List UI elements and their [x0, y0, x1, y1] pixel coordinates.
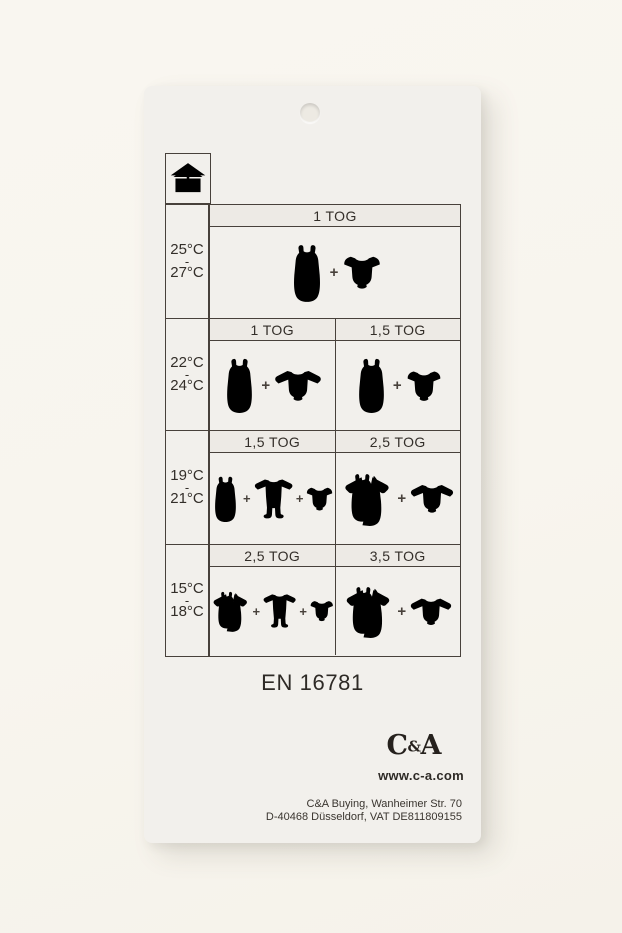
garment-cell: + + — [210, 567, 335, 655]
plus-sign: + — [260, 377, 271, 394]
garment-cell: + — [210, 341, 335, 430]
temp-range: 15°C - 18°C — [166, 544, 208, 655]
tog-header: 2,5 TOG — [335, 431, 461, 452]
temp-range: 22°C - 24°C — [166, 318, 208, 430]
bodysuit-short-sleeve-icon — [341, 254, 383, 291]
tog-table: 1 TOG + 1 TOG 1,5 TOG — [209, 204, 461, 657]
temp-range: 25°C - 27°C — [166, 205, 208, 318]
table-row: 1,5 TOG 2,5 TOG + + + — [210, 430, 460, 544]
table-row: 1 TOG + — [210, 205, 460, 318]
garment-cell: + — [210, 227, 460, 318]
plus-sign: + — [253, 604, 261, 619]
plus-sign: + — [296, 491, 304, 506]
plus-sign: + — [329, 264, 340, 281]
website-url: www.c-a.com — [378, 768, 464, 783]
plus-sign: + — [299, 604, 307, 619]
sleeping-bag-icon — [221, 356, 258, 415]
garment-cell: + — [335, 341, 461, 430]
company-address: C&A Buying, Wanheimer Str. 70 D-40468 Dü… — [266, 798, 462, 824]
tog-header: 1 TOG — [210, 319, 335, 340]
sleeping-bag-sleeved-icon — [210, 584, 251, 638]
tog-header: 1,5 TOG — [210, 431, 335, 452]
plus-sign: + — [243, 491, 251, 506]
brand-logo: C&A — [387, 732, 442, 760]
room-temperature-legend — [165, 153, 211, 204]
sleepsuit-icon — [262, 589, 297, 633]
temperature-column: 25°C - 27°C 22°C - 24°C 19°C - 21°C 15°C… — [165, 204, 209, 657]
standard-number: EN 16781 — [144, 670, 481, 696]
sleeping-bag-icon — [353, 356, 390, 415]
hang-tag: 25°C - 27°C 22°C - 24°C 19°C - 21°C 15°C… — [144, 86, 481, 843]
sleeping-bag-sleeved-icon — [342, 583, 394, 640]
ampersand: & — [408, 737, 421, 755]
address-line: C&A Buying, Wanheimer Str. 70 — [266, 798, 462, 811]
sleeping-bag-icon — [210, 471, 241, 527]
tog-header: 3,5 TOG — [335, 545, 461, 566]
photo-backdrop: 25°C - 27°C 22°C - 24°C 19°C - 21°C 15°C… — [0, 0, 622, 933]
table-row: 1 TOG 1,5 TOG + + — [210, 318, 460, 430]
sleeping-bag-sleeved-icon — [340, 470, 394, 528]
sleepsuit-icon — [253, 475, 294, 523]
house-thermometer-icon — [168, 159, 208, 199]
garment-cell: + + — [210, 453, 335, 544]
bodysuit-short-sleeve-icon — [405, 369, 443, 403]
garment-cell: + — [335, 453, 461, 544]
tog-header: 1 TOG — [210, 205, 460, 226]
plus-sign: + — [392, 377, 403, 394]
plus-sign: + — [396, 603, 407, 620]
table-row: 2,5 TOG 3,5 TOG + + + — [210, 544, 460, 655]
bodysuit-long-sleeve-icon — [409, 596, 453, 627]
punch-hole — [300, 103, 320, 123]
address-line: D-40468 Düsseldorf, VAT DE811809155 — [266, 811, 462, 824]
garment-cell: + — [335, 567, 461, 655]
bodysuit-long-sleeve-icon — [273, 368, 323, 403]
tog-header: 1,5 TOG — [335, 319, 461, 340]
bodysuit-short-sleeve-icon — [305, 485, 334, 513]
sleeping-bag-icon — [287, 242, 327, 304]
tog-header: 2,5 TOG — [210, 545, 335, 566]
bodysuit-long-sleeve-icon — [409, 482, 455, 515]
bodysuit-short-sleeve-icon — [309, 598, 335, 624]
temp-range: 19°C - 21°C — [166, 430, 208, 544]
plus-sign: + — [396, 490, 407, 507]
